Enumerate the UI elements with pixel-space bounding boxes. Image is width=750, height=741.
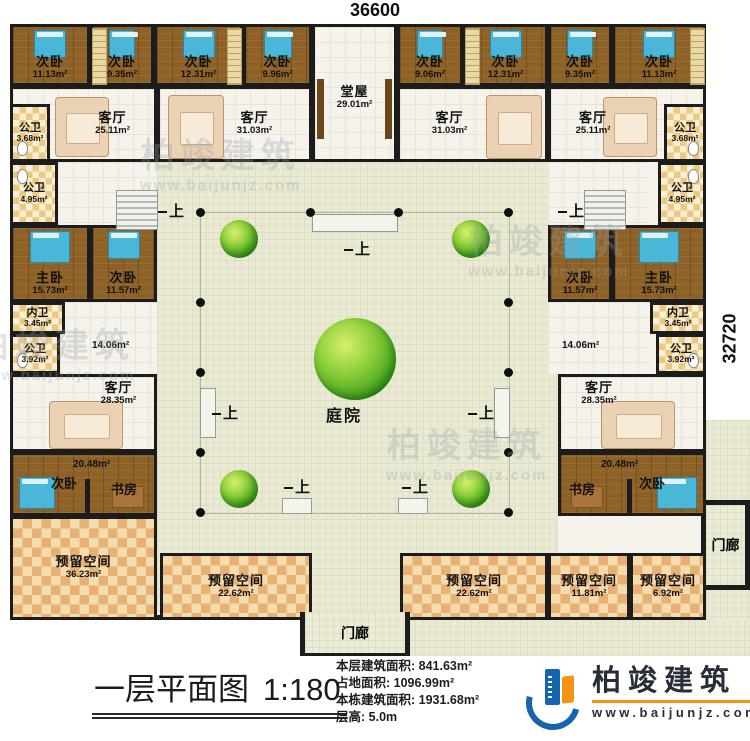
plan-title-text: 一层平面图 [94, 672, 249, 707]
partition-wall [627, 479, 632, 516]
room-area-label: 22.62m² [208, 589, 264, 600]
room-area-label: 15.73m² [641, 286, 676, 297]
room-name-label: 次卧 [642, 55, 677, 70]
porch-south: 门廊 [300, 612, 410, 658]
room-area-label: 9.35m² [107, 70, 137, 81]
room-bedroom-study: 20.48m² 书房 次卧 [558, 452, 706, 516]
room-bedroom: 次卧11.13m² [10, 24, 90, 86]
room-living: 客厅31.03m² [157, 86, 312, 162]
bed [30, 231, 70, 263]
room-area-label: 3.92m² [22, 355, 49, 365]
sofa [486, 95, 542, 159]
room-area-label: 31.03m² [432, 126, 467, 137]
room-reserved: 预留空间22.62m² [400, 553, 548, 620]
room-name-label: 书房 [569, 479, 595, 498]
bed [108, 231, 140, 259]
corridor-area-label: 14.06m² [562, 340, 599, 351]
room-area-label: 11.13m² [642, 70, 677, 81]
room-area-label: 9.96m² [262, 70, 292, 81]
room-bathroom: 公卫4.95m² [658, 162, 706, 225]
company-url: www.baijunjz.com [592, 700, 750, 719]
room-name-label: 预留空间 [208, 574, 264, 589]
room-area-label: 4.95m² [21, 195, 48, 205]
column [196, 448, 205, 457]
bed [639, 231, 679, 263]
room-bedroom: 次卧11.57m² [548, 225, 612, 302]
room-area-label: 20.48m² [73, 459, 110, 470]
room-bathroom: 公卫4.95m² [10, 162, 58, 225]
plan-scale: 1:180 [263, 672, 341, 707]
room-name-label: 次卧 [639, 473, 665, 492]
column [394, 208, 403, 217]
room-area-label: 22.62m² [446, 589, 502, 600]
corridor [548, 302, 650, 374]
closet [465, 28, 480, 85]
room-area-label: 11.57m² [106, 286, 141, 297]
room-reserved: 预留空间22.62m² [160, 553, 312, 620]
room-area-label: 3.45m² [24, 319, 51, 329]
cabinet [317, 79, 324, 139]
room-name-label: 次卧 [563, 271, 598, 286]
room-area-label: 4.95m² [669, 195, 696, 205]
room-area-label: 25.11m² [95, 126, 130, 137]
room-name-label: 客厅 [432, 111, 467, 126]
room-name-label: 客厅 [581, 381, 616, 396]
cabinet [385, 79, 392, 139]
room-master-bedroom: 主卧15.73m² [10, 225, 90, 302]
room-name-label: 书房 [111, 479, 137, 498]
stair-up-label: 上 [212, 402, 238, 423]
staircase-left [116, 190, 158, 230]
sofa [603, 97, 657, 157]
staircase-right [584, 190, 626, 230]
room-name-label: 客厅 [576, 111, 611, 126]
room-area-label: 3.45m² [665, 319, 692, 329]
room-master-bedroom: 主卧15.73m² [612, 225, 706, 302]
stair-up-label: 上 [158, 200, 184, 221]
room-area-label: 29.01m² [337, 100, 372, 111]
room-name-label: 客厅 [237, 111, 272, 126]
room-name-label: 预留空间 [561, 574, 617, 589]
room-area-label: 9.06m² [415, 70, 445, 81]
stair-up-label: 上 [402, 476, 428, 497]
stat-line: 本栋建筑面积: 1931.68m² [336, 692, 479, 709]
room-reserved: 预留空间36.23m² [10, 516, 157, 620]
porch-label: 门廊 [712, 535, 740, 555]
column [504, 368, 513, 377]
room-area-label: 15.73m² [32, 286, 67, 297]
logo-building-blue [545, 669, 560, 705]
plan-title: 一层平面图1:180 [92, 664, 347, 719]
room-bathroom: 公卫3.68m² [10, 104, 50, 162]
room-bedroom-study: 20.48m² 次卧 书房 [10, 452, 157, 516]
column [504, 508, 513, 517]
room-area-label: 12.31m² [181, 70, 216, 81]
stat-line: 本层建筑面积: 841.63m² [336, 658, 479, 675]
room-area-label: 3.92m² [668, 355, 695, 365]
sofa [168, 95, 224, 159]
porch-label: 门廊 [341, 623, 369, 643]
company-logo-icon [528, 666, 584, 722]
column [196, 368, 205, 377]
room-area-label: 28.35m² [101, 396, 136, 407]
column [504, 448, 513, 457]
room-name-label: 主卧 [32, 271, 67, 286]
room-name-label: 主卧 [641, 271, 676, 286]
stat-line: 层高: 5.0m [336, 709, 479, 726]
room-area-label: 20.48m² [601, 459, 638, 470]
dimension-right: 32720 [720, 299, 741, 379]
room-bathroom: 公卫3.68m² [664, 104, 706, 162]
room-area-label: 12.31m² [488, 70, 523, 81]
room-bathroom: 公卫3.92m² [10, 334, 60, 374]
column [504, 298, 513, 307]
room-name-label: 预留空间 [55, 555, 111, 570]
corridor [60, 302, 157, 374]
room-bedroom: 次卧11.57m² [90, 225, 157, 302]
stat-line: 占地面积: 1096.99m² [336, 675, 479, 692]
closet [227, 28, 242, 85]
closet [92, 28, 107, 85]
room-reserved: 预留空间11.81m² [548, 553, 630, 620]
courtyard-label: 庭院 [326, 402, 362, 426]
room-area-label: 31.03m² [237, 126, 272, 137]
tree-small [220, 220, 258, 258]
tree-small [452, 470, 490, 508]
courtyard-step [282, 498, 312, 514]
courtyard-step [398, 498, 428, 514]
room-name-label: 预留空间 [640, 574, 696, 589]
tree-small [452, 220, 490, 258]
bed [19, 477, 55, 509]
sofa [49, 401, 123, 449]
room-main-hall: 堂屋29.01m² [312, 24, 397, 162]
column [196, 298, 205, 307]
porch-east: 门廊 [706, 500, 750, 590]
bed [564, 231, 596, 259]
room-area-label: 3.68m² [672, 134, 699, 144]
room-living: 客厅28.35m² [10, 374, 157, 452]
room-name-label: 预留空间 [446, 574, 502, 589]
column [196, 508, 205, 517]
room-area-label: 25.11m² [576, 126, 611, 137]
tree-small [220, 470, 258, 508]
room-name-label: 次卧 [262, 55, 292, 70]
room-name-label: 次卧 [181, 55, 216, 70]
room-bedroom: 次卧9.35m² [548, 24, 612, 86]
room-name-label: 次卧 [415, 55, 445, 70]
room-area-label: 36.23m² [55, 570, 111, 581]
sofa [601, 401, 675, 449]
room-area-label: 9.35m² [565, 70, 595, 81]
room-name-label: 次卧 [33, 55, 68, 70]
courtyard-step [494, 388, 510, 438]
room-bedroom: 次卧9.06m² [397, 24, 463, 86]
room-name-label: 堂屋 [337, 85, 372, 100]
room-name-label: 次卧 [107, 55, 137, 70]
room-name-label: 客厅 [101, 381, 136, 396]
room-name-label: 次卧 [106, 271, 141, 286]
title-block: 一层平面图1:180 本层建筑面积: 841.63m² 占地面积: 1096.9… [0, 656, 750, 741]
room-area-label: 6.92m² [640, 589, 696, 600]
room-reserved: 预留空间6.92m² [630, 553, 706, 620]
room-name-label: 次卧 [51, 473, 77, 492]
plan-stats: 本层建筑面积: 841.63m² 占地面积: 1096.99m² 本栋建筑面积:… [336, 658, 479, 726]
room-living: 客厅31.03m² [397, 86, 548, 162]
company-logo: 柏竣建筑 www.baijunjz.com [528, 666, 750, 722]
company-name: 柏竣建筑 [592, 667, 750, 696]
column [196, 208, 205, 217]
column [306, 208, 315, 217]
corridor-area-label: 14.06m² [92, 340, 129, 351]
room-name-label: 次卧 [488, 55, 523, 70]
room-area-label: 11.57m² [563, 286, 598, 297]
logo-building-orange [562, 675, 574, 704]
courtyard-step [312, 214, 398, 232]
room-ensuite-bath: 内卫3.45m² [650, 302, 706, 334]
partition-wall [85, 479, 90, 516]
room-name-label: 次卧 [565, 55, 595, 70]
room-area-label: 11.81m² [561, 589, 617, 600]
room-area-label: 3.68m² [17, 134, 44, 144]
stair-up-label: 上 [284, 476, 310, 497]
room-area-label: 28.35m² [581, 396, 616, 407]
stair-up-label: 上 [468, 402, 494, 423]
closet [690, 28, 705, 85]
room-bedroom: 次卧9.96m² [243, 24, 312, 86]
dimension-top: 36600 [325, 0, 425, 21]
room-ensuite-bath: 内卫3.45m² [10, 302, 65, 334]
stair-up-label: 上 [558, 200, 584, 221]
stair-up-label: 上 [344, 238, 370, 259]
room-name-label: 客厅 [95, 111, 130, 126]
room-living: 客厅28.35m² [558, 374, 706, 452]
floor-plan-canvas: 36600 32720 庭院 上 上 上 上 上 上 上 次卧11.13m² 次… [0, 0, 750, 741]
room-bathroom: 公卫3.92m² [656, 334, 706, 374]
tree-large [314, 318, 396, 400]
room-area-label: 11.13m² [33, 70, 68, 81]
column [504, 208, 513, 217]
